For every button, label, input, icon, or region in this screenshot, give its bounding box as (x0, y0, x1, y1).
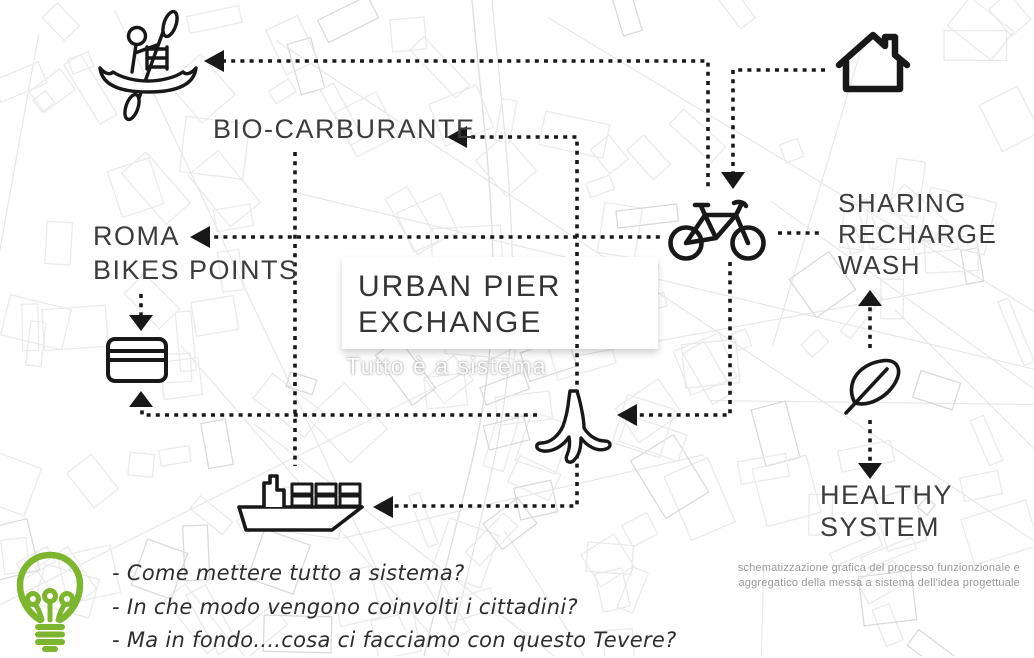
bicycle-icon (668, 196, 766, 262)
leaf-icon (840, 352, 904, 418)
arrowhead-to-card-bottom (129, 391, 153, 407)
arrowhead-to-healthy (858, 463, 882, 479)
label-healthy-system: HEALTHY SYSTEM (820, 479, 953, 543)
label-roma-line2: BIKES POINTS (93, 253, 299, 287)
caption-line2: aggregatico della messa a sistema dell'i… (738, 576, 1020, 591)
label-sharing-recharge-wash: SHARING RECHARGE WASH (838, 188, 997, 281)
arrowhead-to-bike (721, 172, 745, 189)
arrowhead-to-wash (858, 290, 882, 306)
label-roma-line1: ROMA (93, 219, 299, 253)
caption-line1: schematizzazione grafica del processo fu… (738, 561, 1020, 576)
diagram-canvas: URBAN PIER EXCHANGE Tutto è a sistema (0, 0, 1034, 656)
connector-banana-card (142, 404, 537, 415)
arrowhead-to-canoe (204, 50, 224, 72)
credit-card-icon (105, 336, 169, 384)
question-item: - In che modo vengono coinvolti i cittad… (112, 591, 677, 625)
center-title-box: URBAN PIER EXCHANGE (342, 257, 658, 349)
caption-text: schematizzazione grafica del processo fu… (738, 561, 1020, 591)
banana-peel-icon (527, 388, 615, 474)
question-item: - Ma in fondo....cosa ci facciamo con qu… (112, 624, 677, 658)
arrowhead-to-card-top (129, 315, 153, 331)
label-bio-carburante: BIO-CARBURANTE (213, 114, 476, 145)
label-healthy-line2: SYSTEM (820, 511, 953, 543)
center-title-line2: EXCHANGE (358, 305, 658, 341)
canoe-icon (95, 10, 201, 122)
question-item: - Come mettere tutto a sistema? (112, 557, 677, 591)
label-sharing-line3: WASH (838, 250, 997, 281)
arrowhead-to-banana (617, 404, 637, 426)
center-title-line1: URBAN PIER (358, 269, 658, 305)
lightbulb-icon (14, 548, 86, 652)
cargo-ship-icon (236, 470, 370, 540)
connector-house-bike (733, 70, 825, 174)
center-subtitle: Tutto è a sistema (346, 353, 547, 380)
label-healthy-line1: HEALTHY (820, 479, 953, 511)
label-roma-bikes-points: ROMA BIKES POINTS (93, 219, 299, 287)
label-sharing-line2: RECHARGE (838, 219, 997, 250)
question-list: - Come mettere tutto a sistema? - In che… (112, 557, 677, 658)
house-icon (833, 25, 913, 97)
arrowhead-to-ship (373, 496, 393, 518)
label-sharing-line1: SHARING (838, 188, 997, 219)
